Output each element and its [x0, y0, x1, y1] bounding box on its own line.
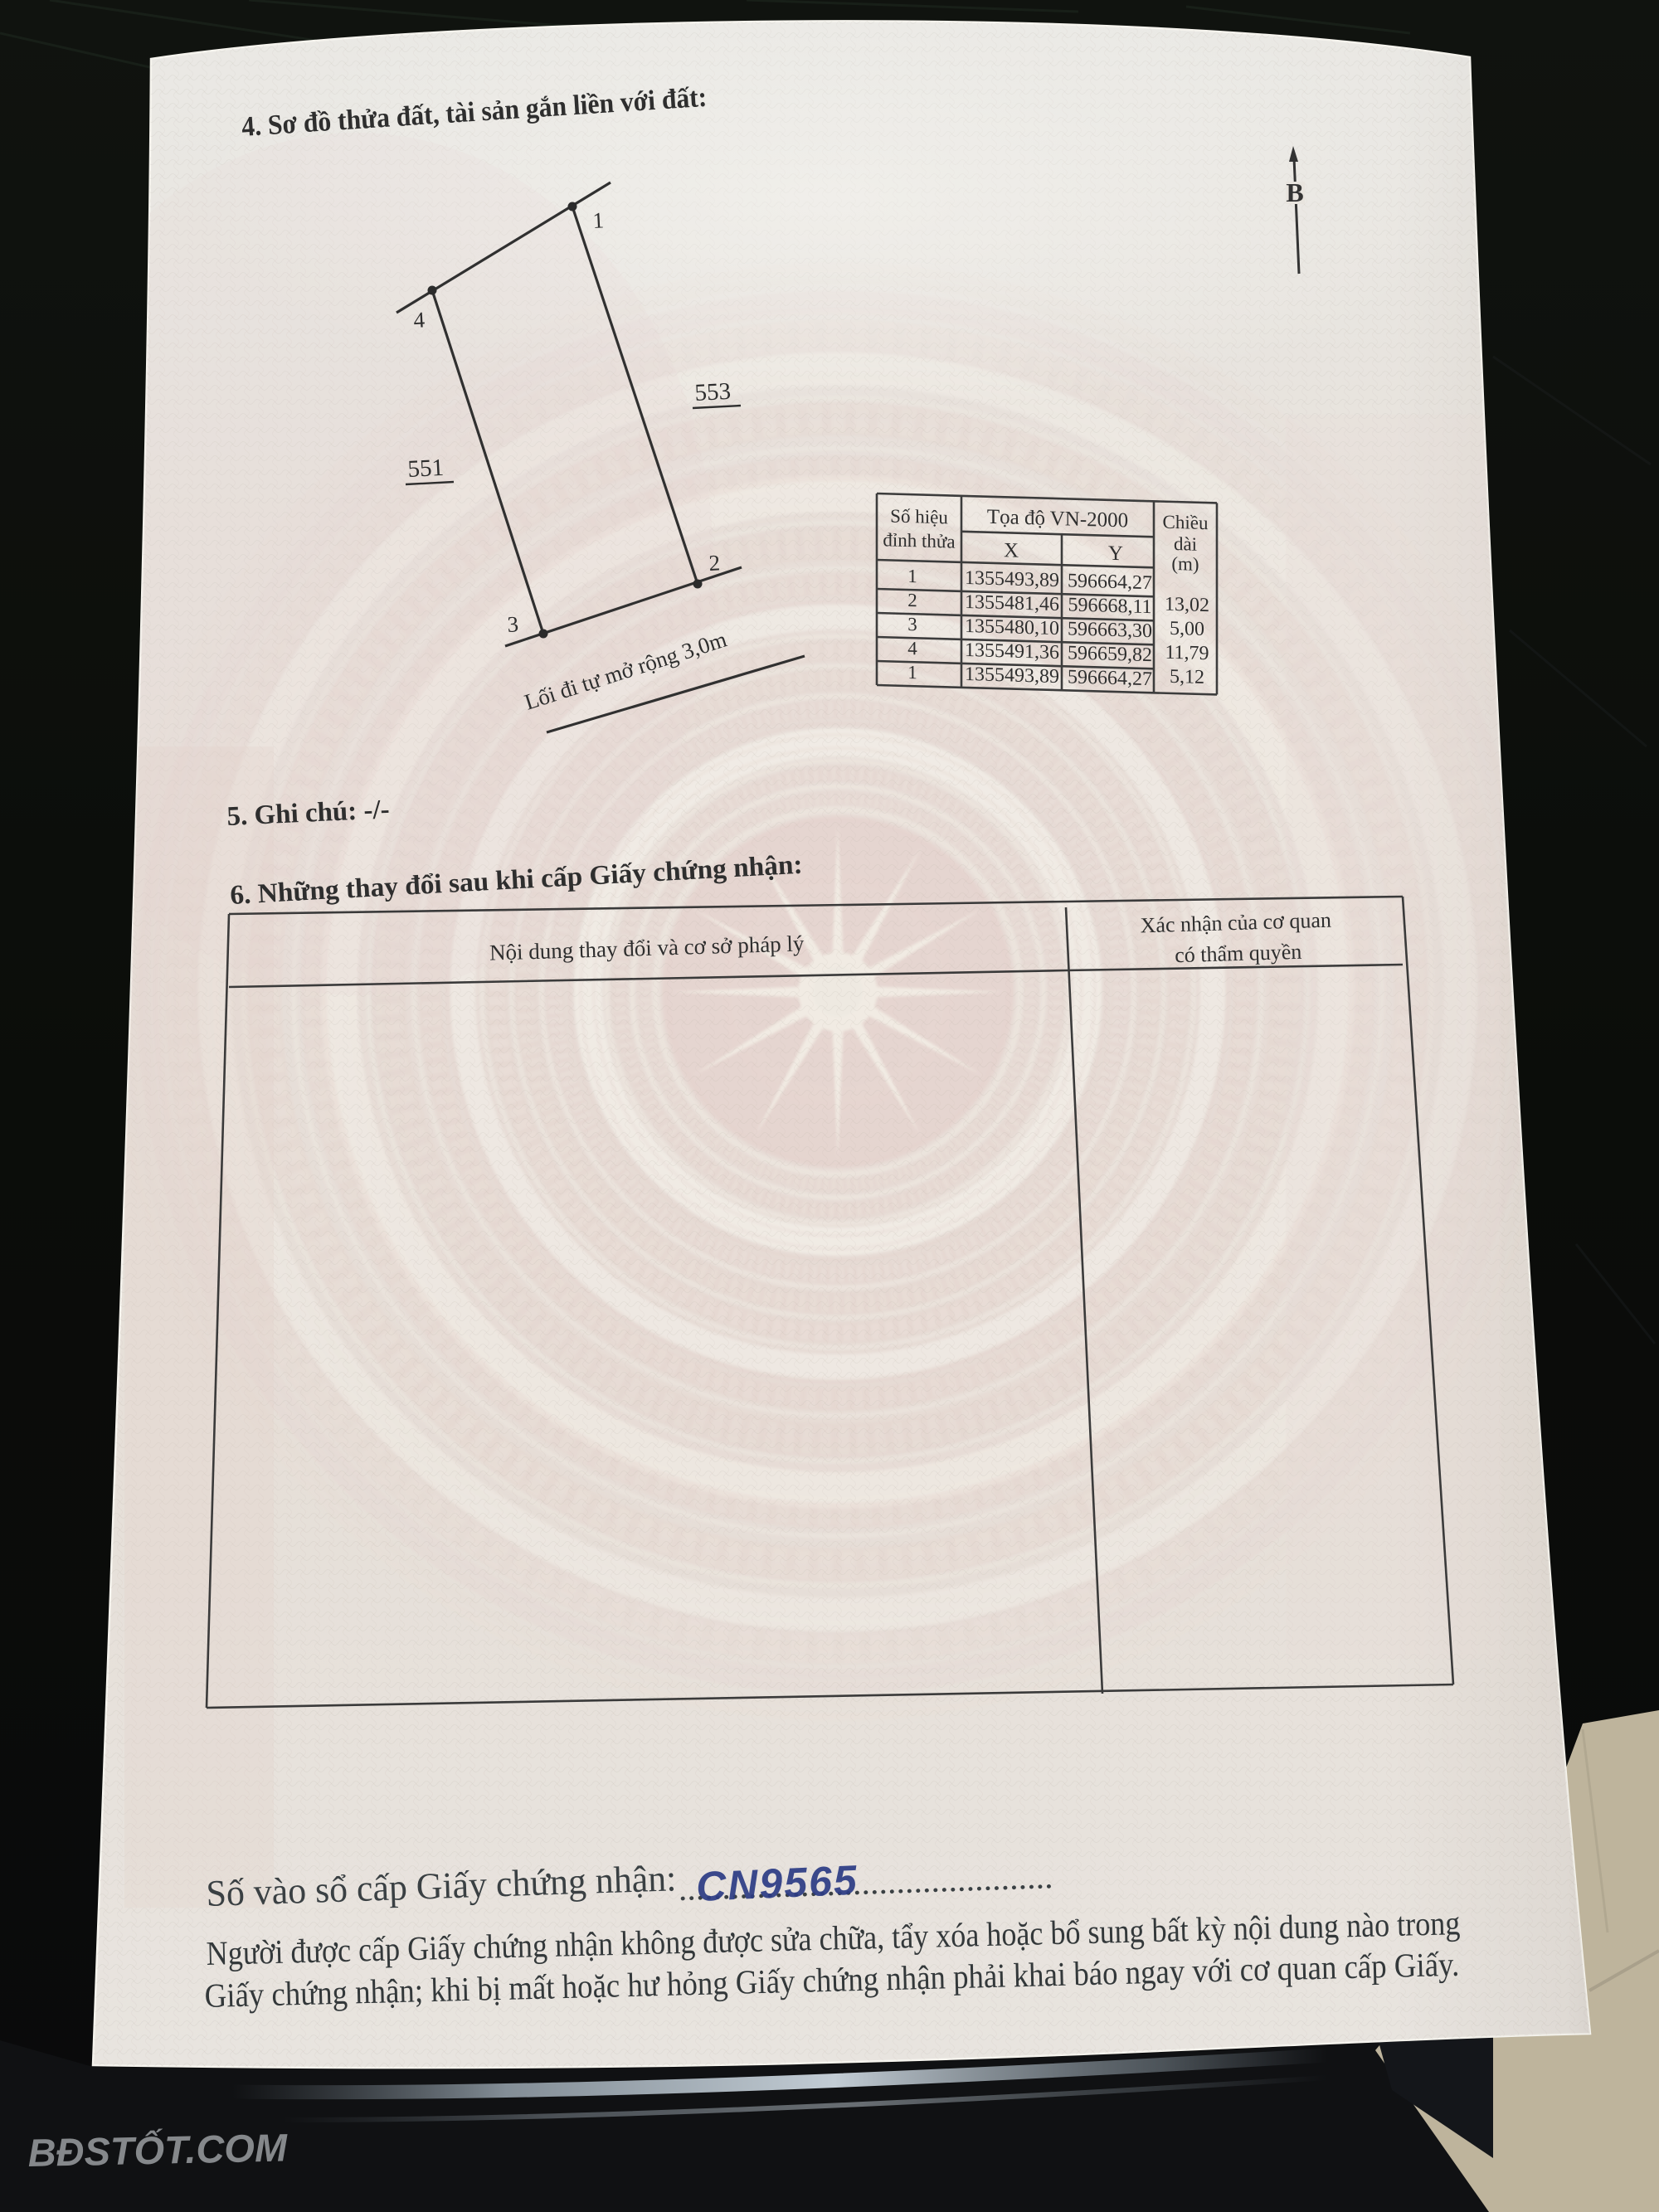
svg-text:596664,27: 596664,27: [1068, 570, 1152, 594]
svg-text:(m): (m): [1171, 553, 1199, 575]
svg-text:Y: Y: [1108, 542, 1123, 565]
svg-text:X: X: [1004, 539, 1019, 562]
svg-text:Số hiệu: Số hiệu: [890, 505, 948, 527]
svg-text:Tọa độ VN-2000: Tọa độ VN-2000: [987, 506, 1128, 532]
svg-text:553: 553: [694, 378, 732, 406]
svg-text:2: 2: [907, 590, 917, 610]
svg-text:4: 4: [413, 307, 426, 333]
svg-text:596664,27: 596664,27: [1068, 666, 1152, 690]
svg-text:551: 551: [407, 455, 445, 483]
svg-text:5,00: 5,00: [1170, 618, 1204, 640]
svg-text:1: 1: [592, 207, 605, 233]
svg-text:đỉnh thửa: đỉnh thửa: [883, 529, 955, 552]
svg-text:Chiều: Chiều: [1163, 512, 1209, 534]
svg-text:5,12: 5,12: [1170, 666, 1204, 688]
svg-text:1355493,89: 1355493,89: [965, 664, 1059, 688]
svg-text:11,79: 11,79: [1165, 642, 1209, 664]
svg-text:1: 1: [907, 566, 917, 586]
svg-text:B: B: [1286, 177, 1303, 207]
svg-text:3: 3: [507, 611, 519, 637]
svg-text:BĐSTỐT.COM: BĐSTỐT.COM: [27, 2125, 288, 2175]
svg-text:dài: dài: [1174, 533, 1197, 555]
svg-text:1355481,46: 1355481,46: [965, 591, 1059, 615]
svg-text:1355491,36: 1355491,36: [965, 639, 1059, 664]
svg-text:596659,82: 596659,82: [1068, 642, 1152, 666]
svg-text:có thẩm quyền: có thẩm quyền: [1175, 940, 1302, 968]
svg-text:2: 2: [708, 550, 721, 576]
svg-text:596663,30: 596663,30: [1068, 618, 1152, 642]
svg-text:1355493,89: 1355493,89: [965, 567, 1059, 591]
svg-text:1: 1: [907, 662, 917, 683]
svg-text:13,02: 13,02: [1165, 594, 1209, 617]
svg-text:596668,11: 596668,11: [1068, 594, 1151, 618]
svg-text:4: 4: [907, 638, 917, 659]
svg-text:3: 3: [907, 614, 917, 634]
svg-text:1355480,10: 1355480,10: [965, 615, 1059, 639]
svg-text:CN9565: CN9565: [695, 1857, 859, 1910]
